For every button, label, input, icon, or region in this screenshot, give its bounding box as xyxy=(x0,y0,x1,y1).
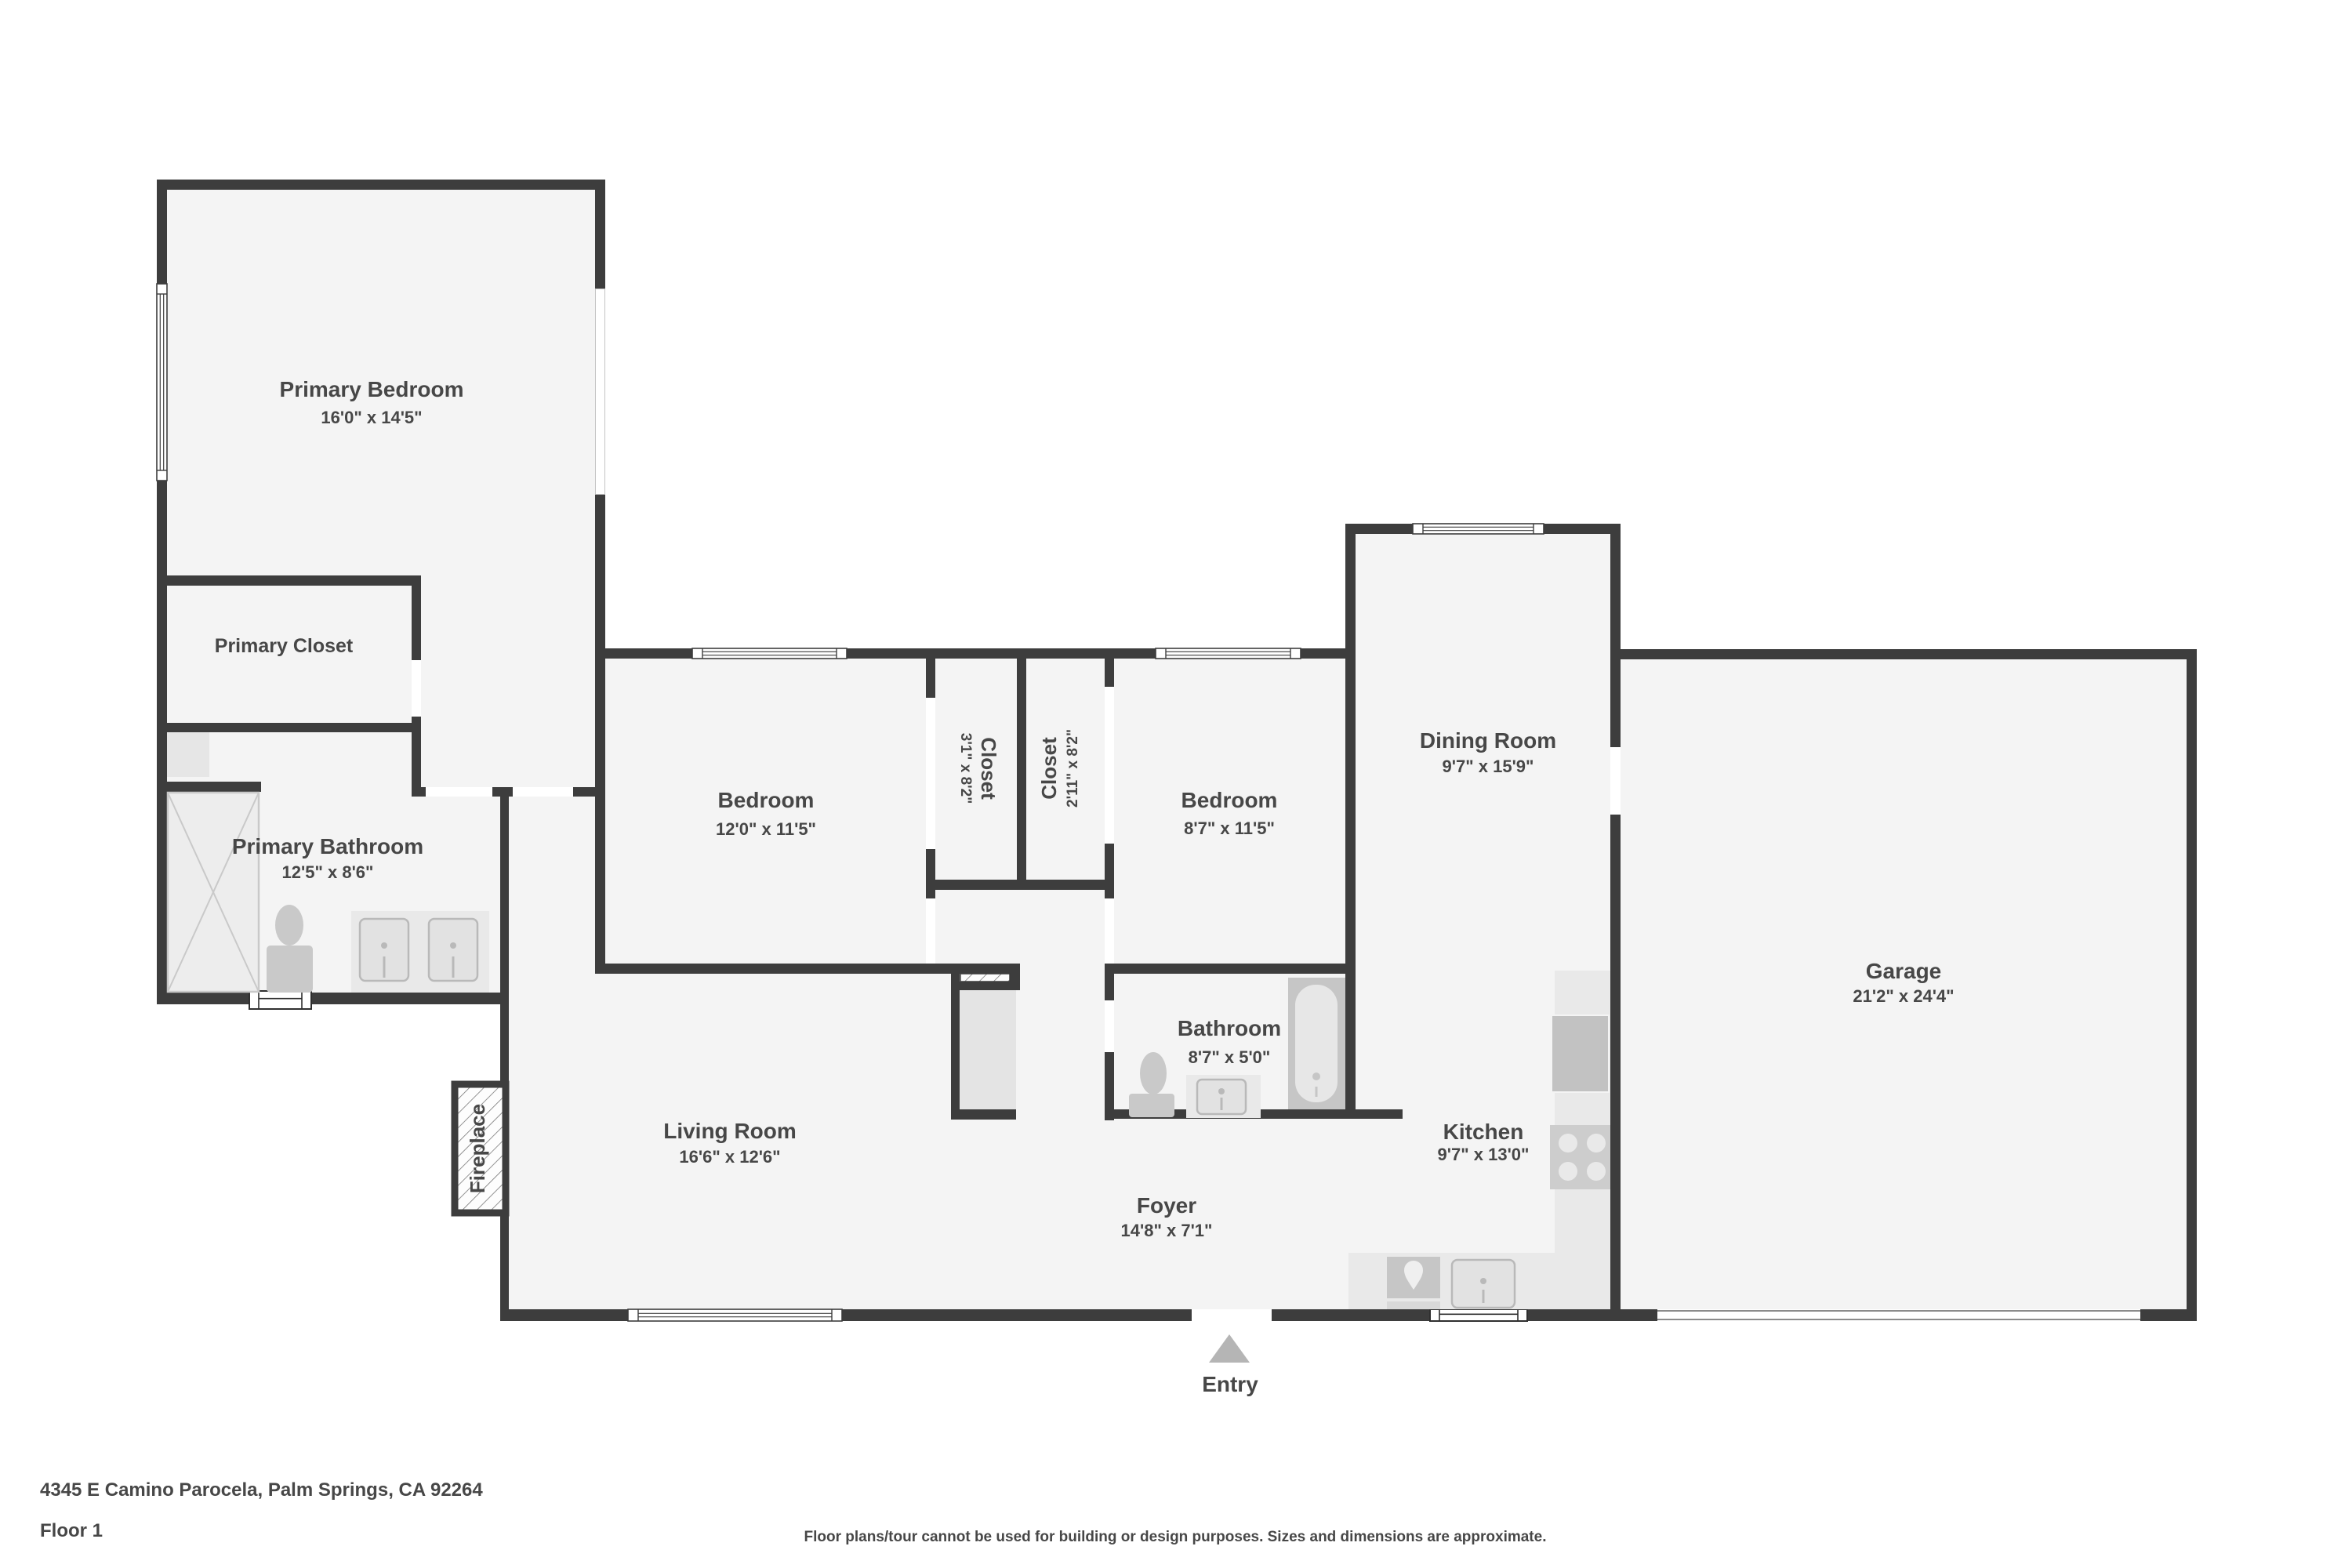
svg-text:Entry: Entry xyxy=(1202,1372,1258,1396)
svg-text:9'7" x 13'0": 9'7" x 13'0" xyxy=(1438,1145,1530,1164)
svg-text:16'0" x 14'5": 16'0" x 14'5" xyxy=(321,408,422,427)
svg-text:Living Room: Living Room xyxy=(663,1119,797,1143)
svg-text:Closet: Closet xyxy=(1037,737,1061,800)
svg-text:4345 E Camino Parocela, Palm S: 4345 E Camino Parocela, Palm Springs, CA… xyxy=(40,1479,483,1501)
svg-text:Dining Room: Dining Room xyxy=(1420,728,1556,753)
svg-text:12'0" x 11'5": 12'0" x 11'5" xyxy=(716,819,816,839)
svg-text:Floor 1: Floor 1 xyxy=(40,1520,103,1541)
svg-text:3'1" x 8'2": 3'1" x 8'2" xyxy=(957,733,974,804)
svg-text:Foyer: Foyer xyxy=(1137,1193,1196,1218)
svg-text:9'7" x 15'9": 9'7" x 15'9" xyxy=(1443,757,1534,776)
svg-text:12'5" x 8'6": 12'5" x 8'6" xyxy=(282,862,374,882)
svg-text:Floor plans/tour cannot be use: Floor plans/tour cannot be used for buil… xyxy=(804,1529,1547,1545)
svg-text:Bathroom: Bathroom xyxy=(1178,1016,1281,1040)
svg-text:Primary Closet: Primary Closet xyxy=(215,635,354,657)
svg-text:8'7" x 5'0": 8'7" x 5'0" xyxy=(1189,1047,1271,1067)
svg-text:Primary Bathroom: Primary Bathroom xyxy=(232,834,423,858)
svg-text:16'6" x 12'6": 16'6" x 12'6" xyxy=(679,1147,780,1167)
svg-text:8'7" x 11'5": 8'7" x 11'5" xyxy=(1184,818,1275,838)
svg-text:21'2" x 24'4": 21'2" x 24'4" xyxy=(1853,986,1954,1006)
svg-text:Bedroom: Bedroom xyxy=(718,788,815,812)
svg-text:14'8" x 7'1": 14'8" x 7'1" xyxy=(1121,1221,1213,1240)
svg-text:Kitchen: Kitchen xyxy=(1443,1120,1524,1144)
svg-text:Primary Bedroom: Primary Bedroom xyxy=(280,377,464,401)
svg-text:Garage: Garage xyxy=(1866,959,1942,983)
svg-text:Bedroom: Bedroom xyxy=(1181,788,1278,812)
svg-text:Closet: Closet xyxy=(977,737,1000,800)
svg-text:2'11" x 8'2": 2'11" x 8'2" xyxy=(1065,729,1081,808)
svg-text:Fireplace: Fireplace xyxy=(466,1104,489,1193)
